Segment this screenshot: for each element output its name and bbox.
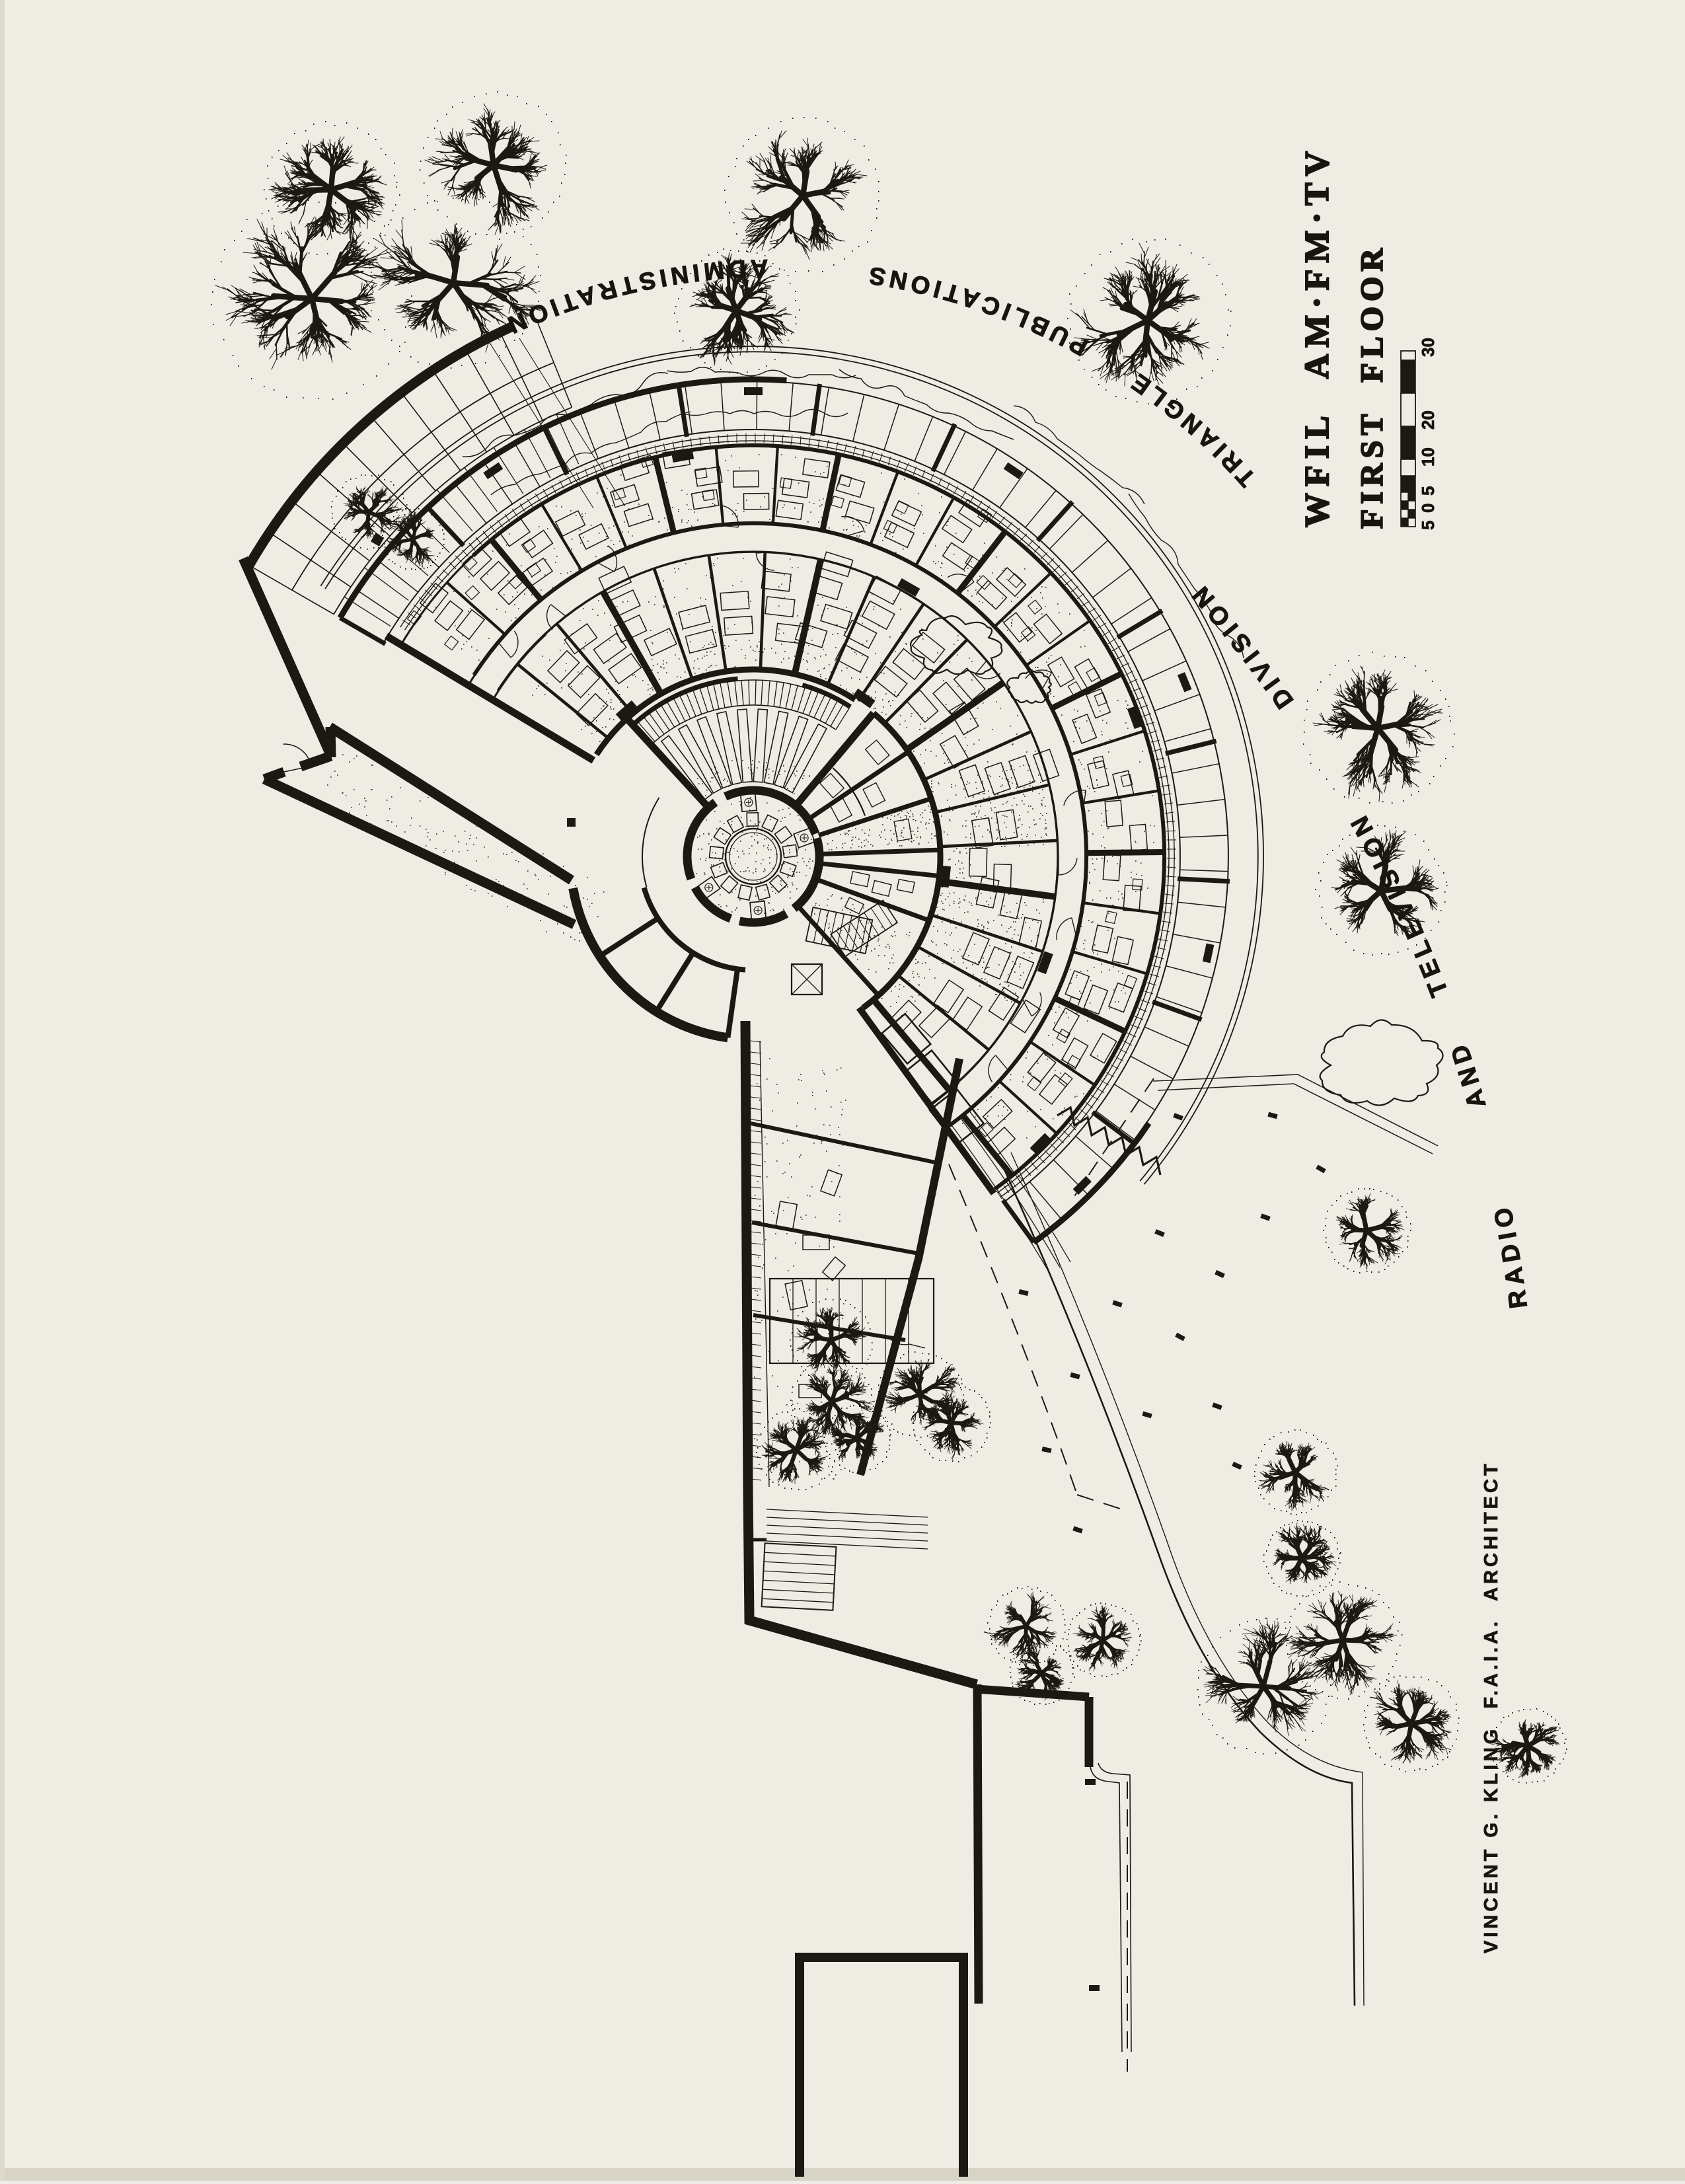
svg-text:VINCENT G. KLING F.A.I.A. AR: VINCENT G. KLING F.A.I.A. ARCHITECT — [1481, 1460, 1502, 1953]
svg-text:FIRST FLOOR: FIRST FLOOR — [1355, 243, 1390, 529]
svg-text:10: 10 — [1418, 447, 1438, 467]
svg-text:5: 5 — [1418, 521, 1438, 530]
svg-text:0: 0 — [1418, 504, 1438, 513]
svg-text:WFIL AM·FM·TV: WFIL AM·FM·TV — [1298, 145, 1336, 527]
svg-text:5: 5 — [1418, 486, 1438, 496]
svg-text:30: 30 — [1418, 338, 1438, 357]
svg-text:20: 20 — [1418, 410, 1438, 430]
